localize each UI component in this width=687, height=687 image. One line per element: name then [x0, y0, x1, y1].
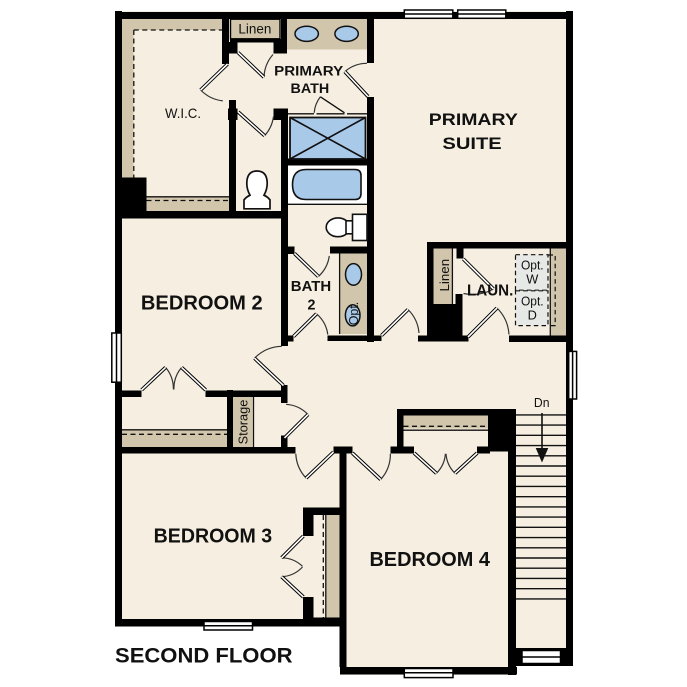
svg-text:SECOND FLOOR: SECOND FLOOR — [115, 643, 293, 668]
svg-text:LAUN.: LAUN. — [467, 283, 513, 300]
svg-text:2: 2 — [308, 297, 316, 313]
svg-text:BEDROOM 2: BEDROOM 2 — [141, 293, 263, 315]
svg-text:W.I.C.: W.I.C. — [165, 106, 201, 121]
svg-text:Opt.: Opt. — [346, 302, 361, 326]
svg-text:SUITE: SUITE — [442, 134, 501, 153]
svg-text:Linen: Linen — [437, 259, 452, 292]
svg-text:Dn: Dn — [534, 395, 550, 410]
svg-text:D: D — [528, 308, 537, 323]
svg-text:Opt.: Opt. — [521, 257, 544, 272]
svg-text:BEDROOM 3: BEDROOM 3 — [154, 526, 273, 548]
svg-text:Storage: Storage — [235, 400, 250, 445]
svg-text:BATH: BATH — [291, 81, 330, 96]
svg-text:BATH: BATH — [291, 279, 331, 295]
svg-text:Linen: Linen — [238, 21, 271, 37]
svg-text:Opt.: Opt. — [521, 294, 544, 309]
svg-text:BEDROOM 4: BEDROOM 4 — [369, 549, 490, 571]
svg-text:PRIMARY: PRIMARY — [429, 110, 518, 129]
svg-text:W: W — [526, 272, 539, 287]
svg-text:PRIMARY: PRIMARY — [274, 63, 343, 78]
